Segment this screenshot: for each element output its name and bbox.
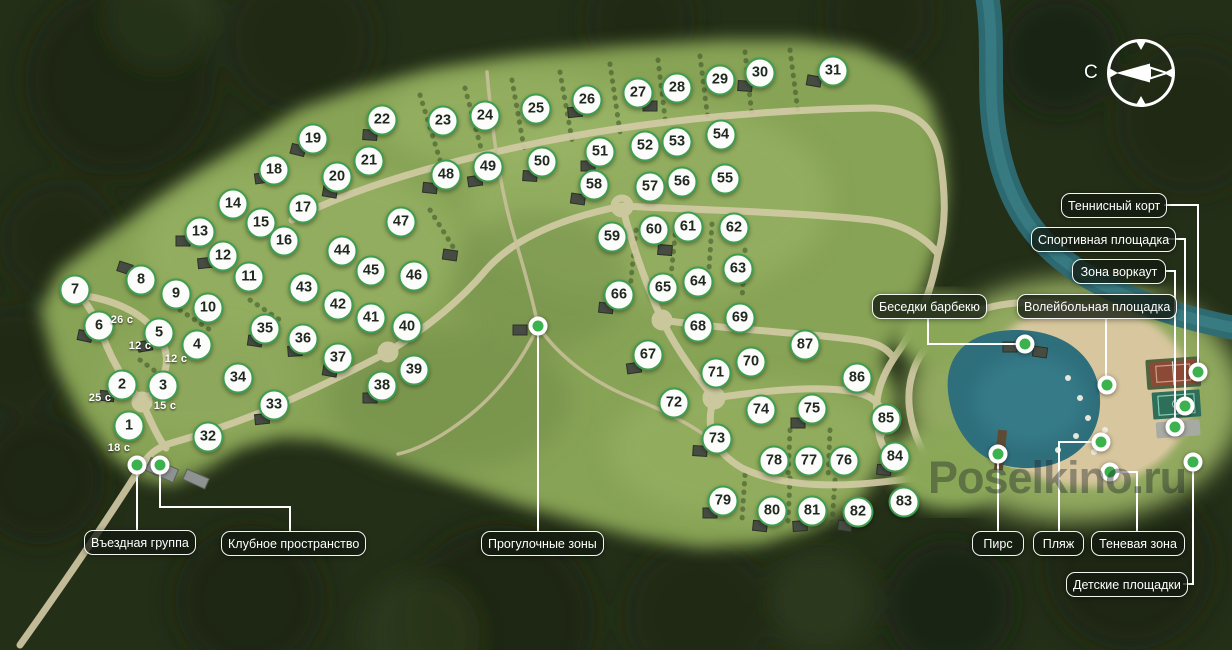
house — [513, 325, 527, 335]
lot-marker[interactable]: 21 — [354, 146, 385, 177]
lot-marker[interactable]: 22 — [367, 105, 398, 136]
lot-marker[interactable]: 1 — [114, 411, 145, 442]
lot-marker[interactable]: 56 — [667, 167, 698, 198]
lot-marker[interactable]: 17 — [288, 193, 319, 224]
lot-marker[interactable]: 11 — [234, 262, 265, 293]
amenity-label-entrance: Въездная группа — [84, 530, 196, 555]
lot-marker[interactable]: 62 — [719, 213, 750, 244]
amenity-label-shade: Теневая зона — [1091, 531, 1185, 556]
lot-marker[interactable]: 86 — [842, 363, 873, 394]
lot-marker[interactable]: 51 — [585, 137, 616, 168]
lot-marker[interactable]: 12 — [208, 241, 239, 272]
lot-marker[interactable]: 38 — [367, 371, 398, 402]
amenity-dot-entrance[interactable] — [128, 456, 147, 475]
amenity-dot-beach[interactable] — [1092, 433, 1111, 452]
lot-marker[interactable]: 31 — [818, 56, 849, 87]
amenity-dot-sport[interactable] — [1176, 397, 1195, 416]
compass: С — [1106, 38, 1176, 108]
lot-marker[interactable]: 29 — [705, 65, 736, 96]
lot-marker[interactable]: 26 — [572, 85, 603, 116]
lot-marker[interactable]: 81 — [797, 496, 828, 527]
lot-marker[interactable]: 46 — [399, 261, 430, 292]
lot-marker[interactable]: 69 — [725, 303, 756, 334]
lot-marker[interactable]: 44 — [327, 236, 358, 267]
lot-marker[interactable]: 67 — [633, 340, 664, 371]
lot-marker[interactable]: 68 — [683, 312, 714, 343]
lot-marker[interactable]: 52 — [630, 131, 661, 162]
amenity-dot-tennis[interactable] — [1189, 363, 1208, 382]
lot-marker[interactable]: 57 — [635, 172, 666, 203]
lot-marker[interactable]: 32 — [193, 422, 224, 453]
lot-marker[interactable]: 30 — [745, 58, 776, 89]
lot-marker[interactable]: 24 — [470, 101, 501, 132]
lot-area-label: 12 с — [165, 353, 188, 365]
lot-marker[interactable]: 9 — [161, 279, 192, 310]
lot-marker[interactable]: 78 — [759, 446, 790, 477]
lot-marker[interactable]: 36 — [288, 324, 319, 355]
site-watermark: Poselkino.ru — [928, 452, 1186, 504]
lot-marker[interactable]: 87 — [790, 330, 821, 361]
lot-marker[interactable]: 37 — [323, 343, 354, 374]
lot-marker[interactable]: 75 — [797, 394, 828, 425]
lot-marker[interactable]: 13 — [185, 217, 216, 248]
amenity-label-sport: Спортивная площадка — [1031, 227, 1176, 252]
amenity-label-bbq: Беседки барбекю — [872, 294, 987, 319]
amenity-label-club: Клубное пространство — [221, 531, 366, 556]
lot-marker[interactable]: 55 — [710, 164, 741, 195]
lot-marker[interactable]: 18 — [259, 155, 290, 186]
lot-marker[interactable]: 39 — [399, 355, 430, 386]
lot-marker[interactable]: 48 — [431, 160, 462, 191]
amenity-label-workout: Зона воркаут — [1072, 259, 1166, 284]
lot-area-label: 15 с — [154, 400, 177, 412]
lot-marker[interactable]: 42 — [323, 290, 354, 321]
lot-marker[interactable]: 10 — [193, 293, 224, 324]
lot-marker[interactable]: 40 — [392, 312, 423, 343]
amenity-label-walking: Прогулочные зоны — [481, 531, 604, 556]
lot-marker[interactable]: 58 — [579, 170, 610, 201]
lot-marker[interactable]: 53 — [662, 127, 693, 158]
lot-marker[interactable]: 27 — [623, 78, 654, 109]
amenity-label-beach: Пляж — [1033, 531, 1084, 556]
lot-marker[interactable]: 50 — [527, 147, 558, 178]
compass-rose-icon — [1106, 38, 1176, 108]
lot-marker[interactable]: 77 — [794, 446, 825, 477]
lot-marker[interactable]: 43 — [289, 273, 320, 304]
lot-marker[interactable]: 63 — [723, 254, 754, 285]
lot-marker[interactable]: 35 — [250, 314, 281, 345]
lot-area-label: 12 с — [129, 340, 152, 352]
lot-marker[interactable]: 3 — [148, 371, 179, 402]
amenity-dot-volleyball[interactable] — [1098, 376, 1117, 395]
lot-marker[interactable]: 20 — [322, 162, 353, 193]
lot-marker[interactable]: 23 — [428, 106, 459, 137]
amenity-dot-workout[interactable] — [1166, 418, 1185, 437]
lot-marker[interactable]: 80 — [757, 496, 788, 527]
lot-marker[interactable]: 66 — [604, 280, 635, 311]
lot-marker[interactable]: 70 — [736, 347, 767, 378]
amenity-label-pier: Пирс — [972, 531, 1024, 556]
lot-marker[interactable]: 16 — [269, 226, 300, 257]
compass-needle-icon — [1116, 64, 1150, 83]
lot-marker[interactable]: 64 — [683, 267, 714, 298]
lot-marker[interactable]: 47 — [386, 207, 417, 238]
lot-area-label: 18 с — [108, 442, 131, 454]
house — [442, 249, 457, 261]
lot-marker[interactable]: 60 — [639, 215, 670, 246]
amenity-dot-walking[interactable] — [529, 317, 548, 336]
lot-marker[interactable]: 25 — [521, 94, 552, 125]
lot-marker[interactable]: 33 — [259, 390, 290, 421]
lot-marker[interactable]: 65 — [648, 273, 679, 304]
amenity-label-volleyball: Волейбольная площадка — [1017, 294, 1177, 319]
lot-marker[interactable]: 72 — [659, 388, 690, 419]
lot-marker[interactable]: 7 — [60, 275, 91, 306]
lot-marker[interactable]: 74 — [746, 395, 777, 426]
lot-marker[interactable]: 71 — [701, 358, 732, 389]
house — [1032, 346, 1047, 358]
lot-marker[interactable]: 54 — [706, 120, 737, 151]
lot-marker[interactable]: 59 — [597, 222, 628, 253]
lot-marker[interactable]: 34 — [223, 363, 254, 394]
lot-marker[interactable]: 28 — [662, 73, 693, 104]
lot-marker[interactable]: 83 — [889, 487, 920, 518]
lot-marker[interactable]: 49 — [473, 152, 504, 183]
house — [658, 244, 673, 255]
compass-north-label: С — [1084, 62, 1098, 84]
lot-marker[interactable]: 45 — [356, 256, 387, 287]
lot-marker[interactable]: 61 — [673, 212, 704, 243]
lot-marker[interactable]: 76 — [829, 446, 860, 477]
amenity-label-tennis: Теннисный корт — [1061, 193, 1167, 218]
amenity-dot-club[interactable] — [151, 456, 170, 475]
masterplan-map: 1234567891011121314151617181920212223242… — [0, 0, 1232, 650]
amenity-label-kids: Детские площадки — [1066, 572, 1188, 597]
amenity-dot-bbq[interactable] — [1016, 335, 1035, 354]
lot-marker[interactable]: 41 — [356, 303, 387, 334]
lot-marker[interactable]: 73 — [702, 424, 733, 455]
lot-marker[interactable]: 14 — [218, 189, 249, 220]
lot-marker[interactable]: 19 — [298, 124, 329, 155]
lot-marker[interactable]: 84 — [880, 442, 911, 473]
lot-marker[interactable]: 85 — [871, 404, 902, 435]
lot-area-label: 26 с — [111, 314, 134, 326]
lot-marker[interactable]: 79 — [708, 486, 739, 517]
amenity-dot-kids[interactable] — [1184, 453, 1203, 472]
lot-marker[interactable]: 8 — [126, 265, 157, 296]
lot-area-label: 25 с — [89, 392, 112, 404]
lot-marker[interactable]: 82 — [843, 497, 874, 528]
